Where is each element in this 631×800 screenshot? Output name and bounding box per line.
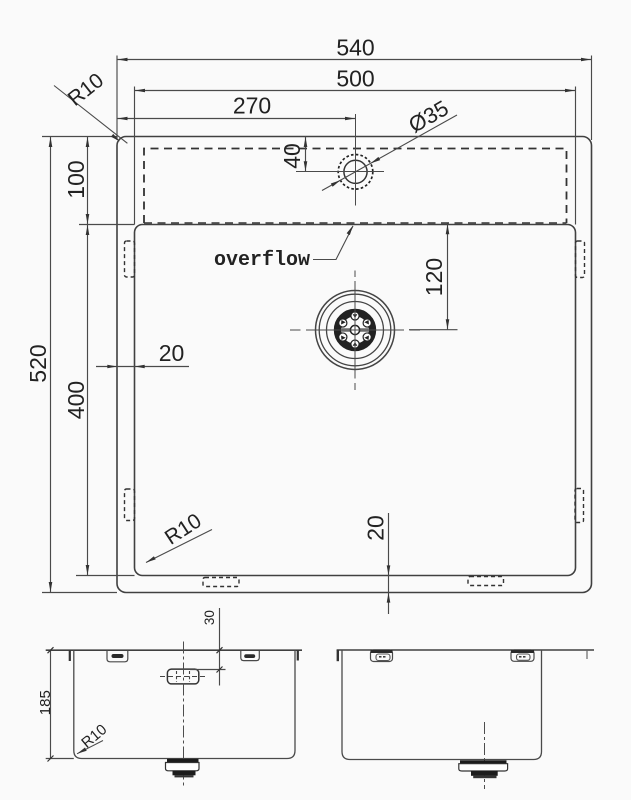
svg-text:100: 100 [63,160,89,198]
svg-text:270: 270 [233,93,271,119]
svg-text:185: 185 [37,690,54,715]
svg-text:540: 540 [336,35,374,61]
svg-text:20: 20 [363,515,389,541]
svg-text:520: 520 [25,344,51,382]
svg-text:400: 400 [63,381,89,419]
svg-text:40: 40 [279,143,305,169]
svg-text:overflow: overflow [214,249,310,272]
svg-text:500: 500 [336,66,374,92]
svg-text:120: 120 [421,258,447,296]
svg-text:30: 30 [202,610,217,625]
svg-text:20: 20 [159,340,185,366]
